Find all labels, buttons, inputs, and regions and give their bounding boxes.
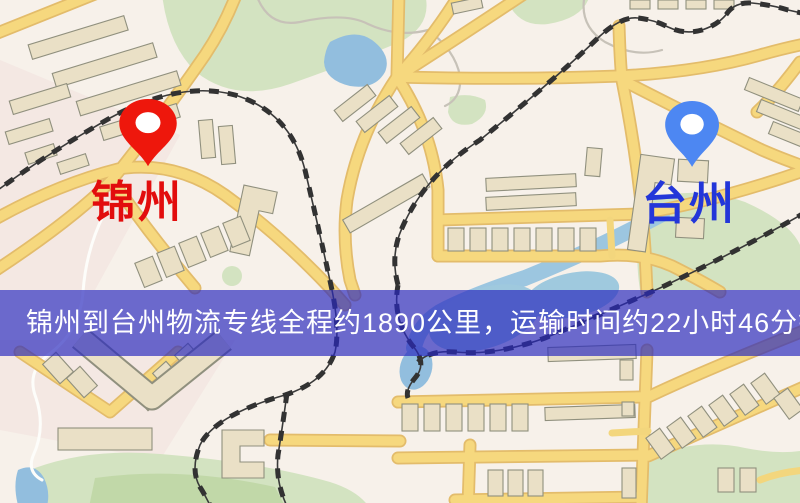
- origin-city-label: 锦州: [91, 178, 183, 227]
- route-info-banner: 锦州到台州物流专线全程约1890公里，运输时间约22小时46分钟.: [0, 290, 800, 356]
- map-image: 锦州 台州: [0, 0, 800, 503]
- destination-city-label: 台州: [642, 179, 736, 229]
- destination-pin-hole: [680, 114, 703, 135]
- origin-pin-hole: [136, 112, 161, 133]
- map-canvas: 锦州 台州 锦州到台州物流专线全程约1890公里，运输时间约22小时46分钟.: [0, 0, 800, 503]
- route-info-text: 锦州到台州物流专线全程约1890公里，运输时间约22小时46分钟.: [26, 308, 800, 338]
